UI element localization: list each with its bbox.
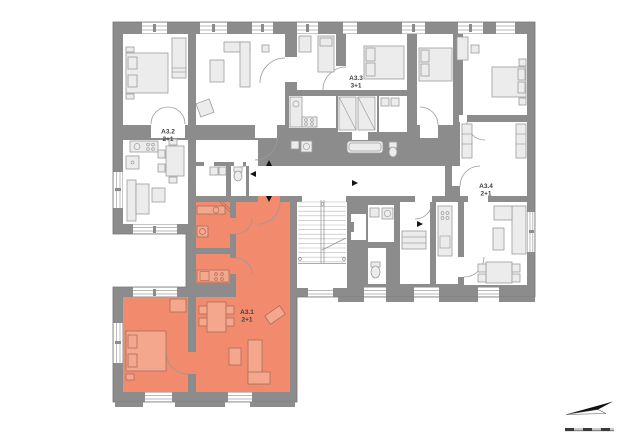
kitchen-counter xyxy=(438,206,452,256)
washbasin xyxy=(210,167,226,175)
coffee-table xyxy=(152,188,165,202)
window xyxy=(252,23,273,34)
nightstand xyxy=(126,374,134,380)
apartment-layout: 2+1 xyxy=(480,191,491,198)
bath-shelf xyxy=(197,206,225,214)
plant xyxy=(262,45,269,52)
double-bed xyxy=(364,46,404,79)
apartment-layout: 2+1 xyxy=(241,317,252,324)
apartment-layout: 2+1 xyxy=(162,136,173,143)
floor-plan: A3.2 2+1 A3.3 3+1 A3.4 2+1 A3.1 2+1 xyxy=(0,0,631,446)
apartment-id: A3.4 xyxy=(479,183,493,190)
double-bed xyxy=(126,47,168,99)
washing-machine xyxy=(301,141,312,152)
shaft-door xyxy=(351,222,354,232)
scale-bar xyxy=(565,428,614,431)
side-table xyxy=(471,45,479,53)
closet xyxy=(402,231,426,249)
window xyxy=(133,225,177,234)
window xyxy=(343,23,357,34)
window xyxy=(228,393,252,402)
oven xyxy=(126,156,139,169)
washbasin xyxy=(291,141,299,149)
compass xyxy=(565,402,614,431)
window xyxy=(133,288,177,297)
window xyxy=(142,23,167,34)
toilet xyxy=(234,167,242,181)
apartment-id: A3.1 xyxy=(240,309,254,316)
toilet xyxy=(371,262,380,278)
window xyxy=(200,23,227,34)
floor-plan-page: A3.2 2+1 A3.3 3+1 A3.4 2+1 A3.1 2+1 xyxy=(0,0,631,446)
closet xyxy=(516,124,526,158)
window xyxy=(297,23,318,34)
label-a3-1[interactable]: A3.1 2+1 xyxy=(240,309,254,324)
window xyxy=(364,288,386,297)
window xyxy=(402,23,425,34)
desk xyxy=(299,36,311,52)
label-a3-3[interactable]: A3.3 3+1 xyxy=(349,75,363,90)
window xyxy=(114,172,123,208)
window xyxy=(308,288,333,297)
apartment-id: A3.2 xyxy=(161,129,175,136)
kitchen-counter xyxy=(197,270,229,282)
window xyxy=(145,393,172,402)
tv-cabinet xyxy=(229,348,241,365)
window xyxy=(478,288,499,297)
double-bed xyxy=(126,331,166,371)
window xyxy=(414,288,439,297)
coffee-table xyxy=(210,60,224,82)
window xyxy=(528,212,535,252)
kitchen-counter xyxy=(130,141,158,152)
window xyxy=(458,23,483,34)
closet xyxy=(339,97,356,130)
bathtub xyxy=(347,141,383,153)
coffee-table xyxy=(493,228,504,250)
apartment-id: A3.3 xyxy=(349,75,363,82)
wardrobe xyxy=(172,38,186,78)
label-a3-4[interactable]: A3.4 2+1 xyxy=(479,183,493,198)
window xyxy=(114,323,123,363)
washing-machine xyxy=(382,208,393,219)
window xyxy=(496,23,515,34)
wardrobe xyxy=(457,37,468,60)
toilet xyxy=(389,142,397,157)
double-bed xyxy=(419,48,452,81)
closet xyxy=(358,97,375,130)
label-a3-2[interactable]: A3.2 2+1 xyxy=(161,129,175,144)
washing-machine xyxy=(197,226,208,237)
single-bed xyxy=(318,36,334,72)
apartment-layout: 3+1 xyxy=(350,83,361,90)
washbasin xyxy=(370,208,379,217)
closet xyxy=(462,124,472,158)
wardrobe xyxy=(170,299,186,312)
